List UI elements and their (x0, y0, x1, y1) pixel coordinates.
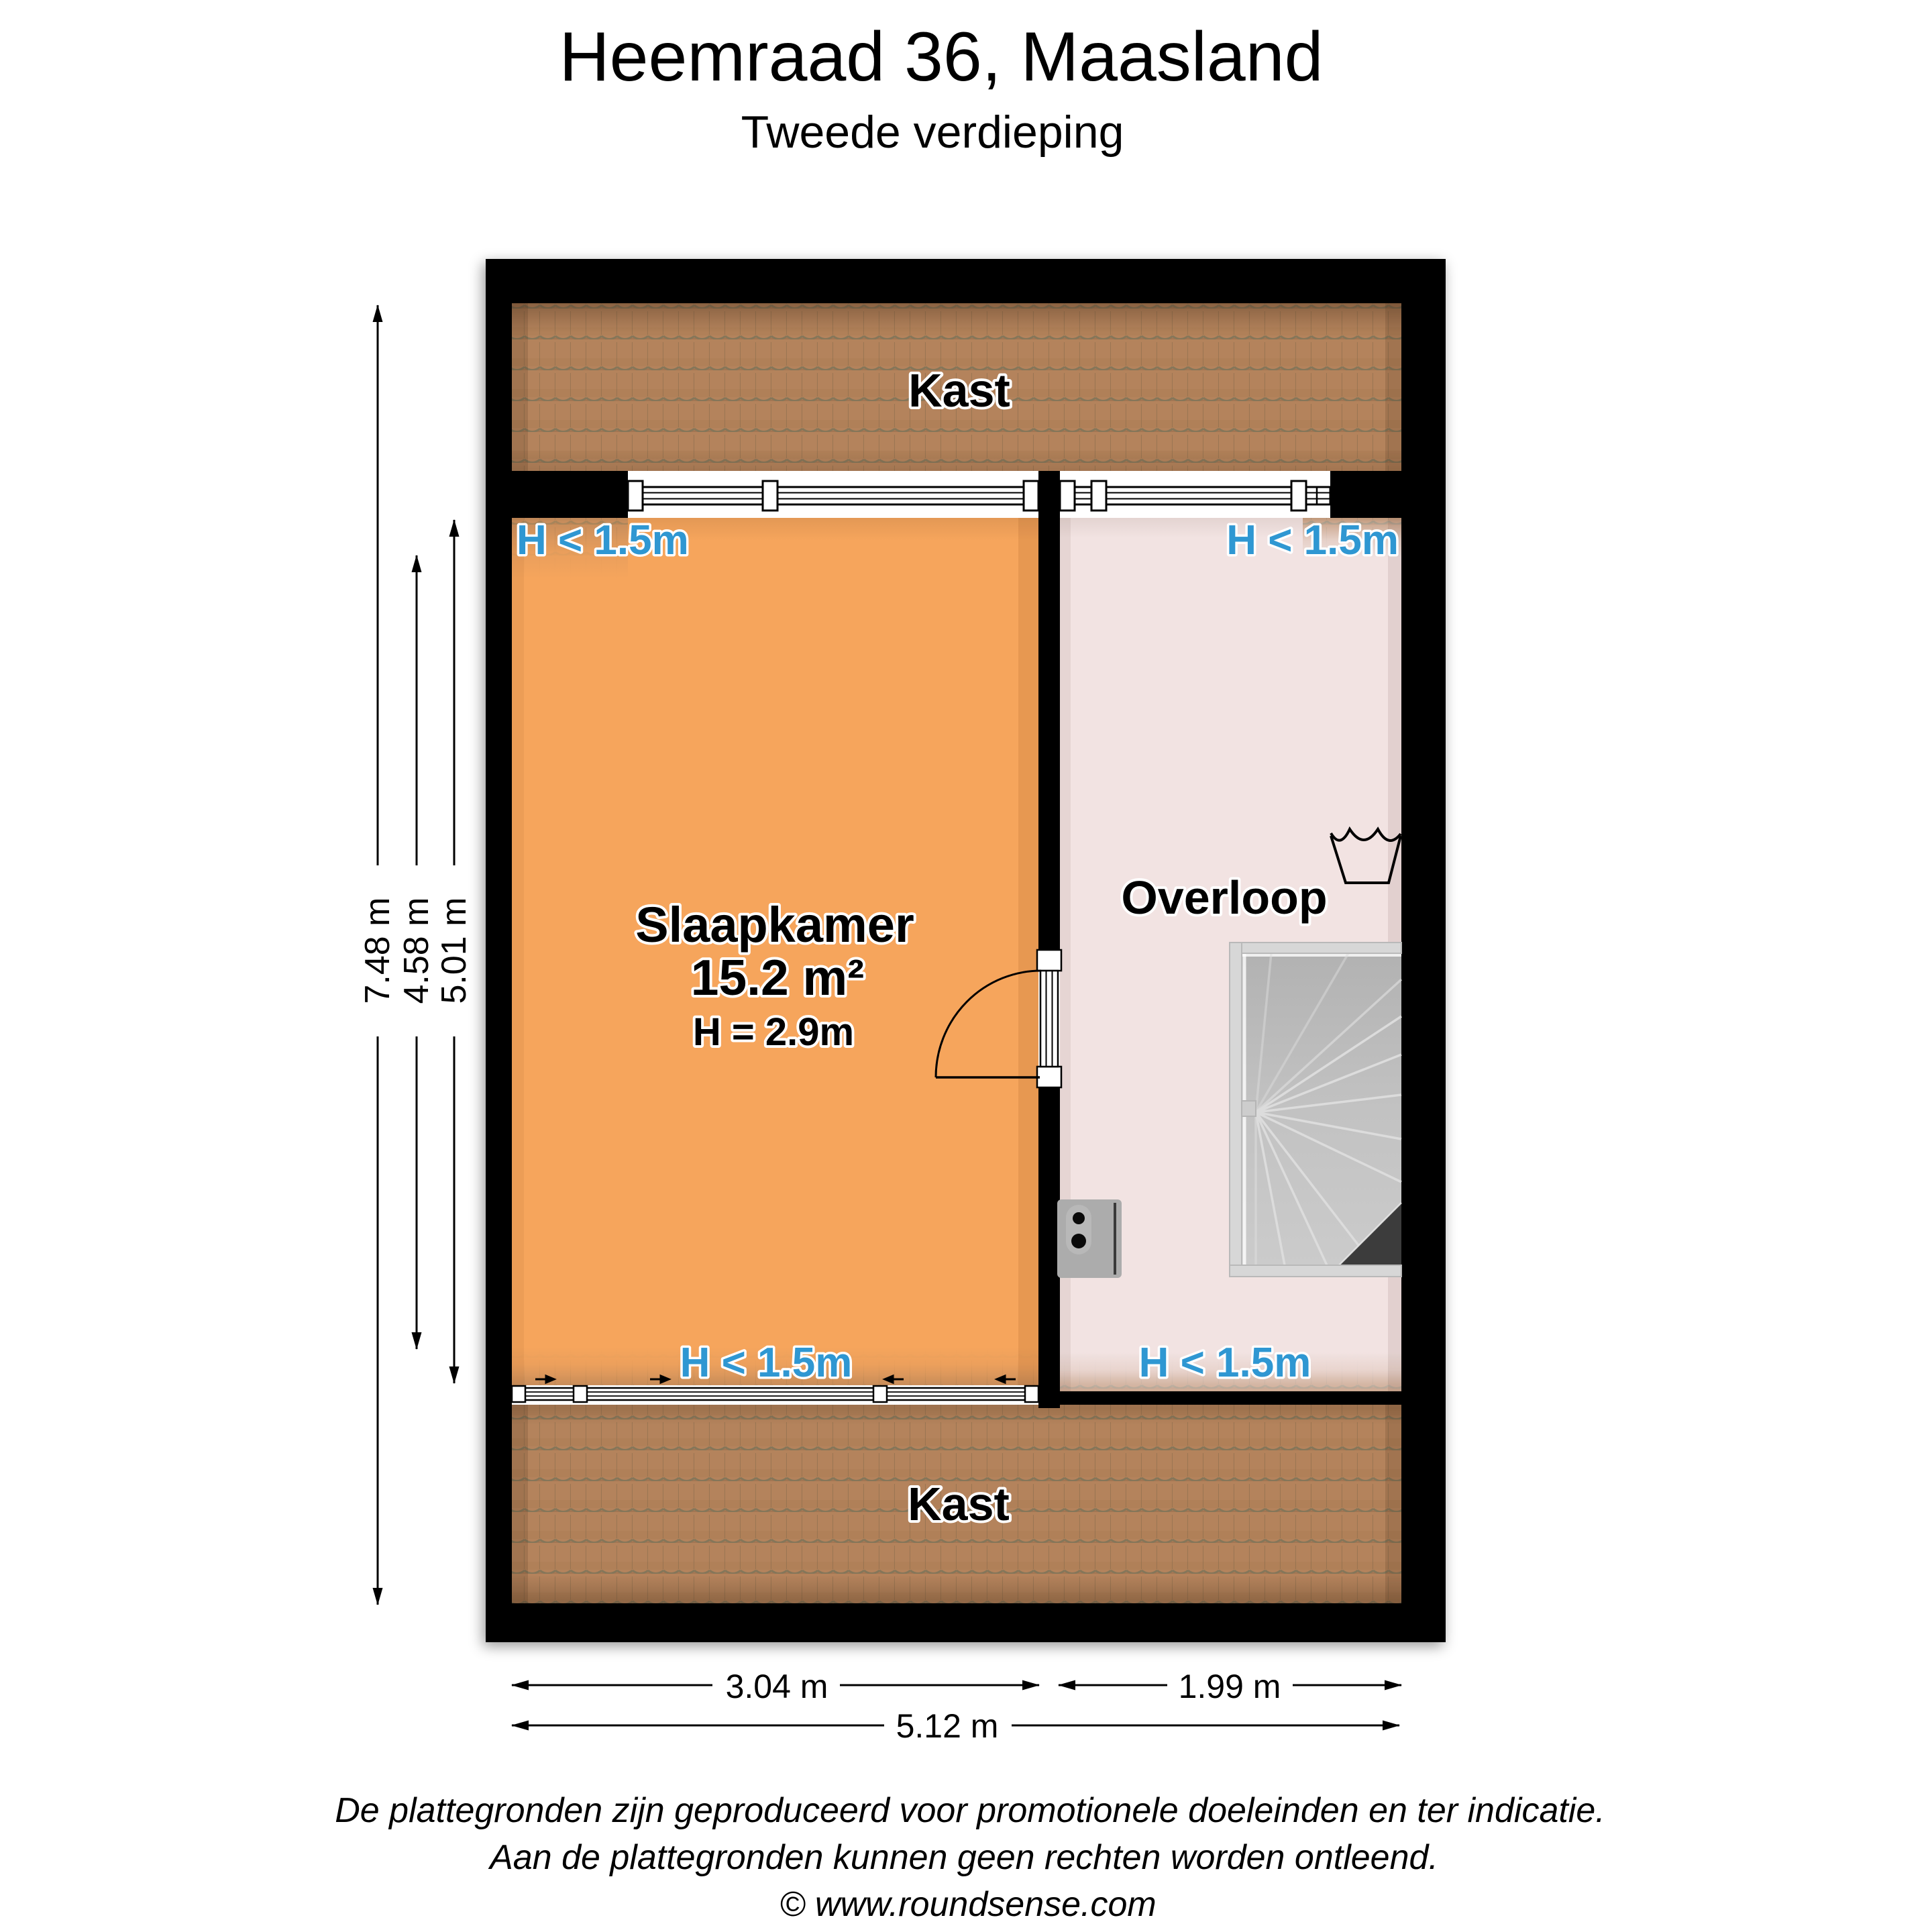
svg-text:4.58 m: 4.58 m (397, 898, 436, 1004)
svg-text:H < 1.5m: H < 1.5m (1226, 517, 1399, 563)
svg-text:Kast: Kast (908, 364, 1010, 417)
svg-text:Slaapkamer: Slaapkamer (635, 897, 914, 953)
svg-text:5.01 m: 5.01 m (435, 898, 474, 1004)
svg-text:Tweede verdieping: Tweede verdieping (741, 107, 1124, 158)
svg-text:Aan de plattegronden kunnen ge: Aan de plattegronden kunnen geen rechten… (488, 1838, 1438, 1877)
svg-text:Kast: Kast (908, 1478, 1010, 1530)
svg-text:Overloop: Overloop (1121, 871, 1327, 924)
svg-text:7.48 m: 7.48 m (358, 898, 397, 1004)
svg-text:H < 1.5m: H < 1.5m (517, 517, 689, 563)
svg-text:De plattegronden zijn geproduc: De plattegronden zijn geproduceerd voor … (335, 1791, 1605, 1830)
svg-text:H < 1.5m: H < 1.5m (680, 1340, 853, 1386)
svg-text:© www.roundsense.com: © www.roundsense.com (780, 1885, 1156, 1924)
svg-text:15.2 m²: 15.2 m² (691, 949, 864, 1006)
svg-text:H = 2.9m: H = 2.9m (693, 1010, 854, 1054)
svg-text:H < 1.5m: H < 1.5m (1139, 1340, 1311, 1386)
svg-text:1.99 m: 1.99 m (1179, 1668, 1281, 1705)
svg-text:Heemraad 36, Maasland: Heemraad 36, Maasland (559, 18, 1324, 96)
svg-text:3.04 m: 3.04 m (726, 1668, 828, 1705)
svg-text:5.12 m: 5.12 m (896, 1707, 999, 1745)
